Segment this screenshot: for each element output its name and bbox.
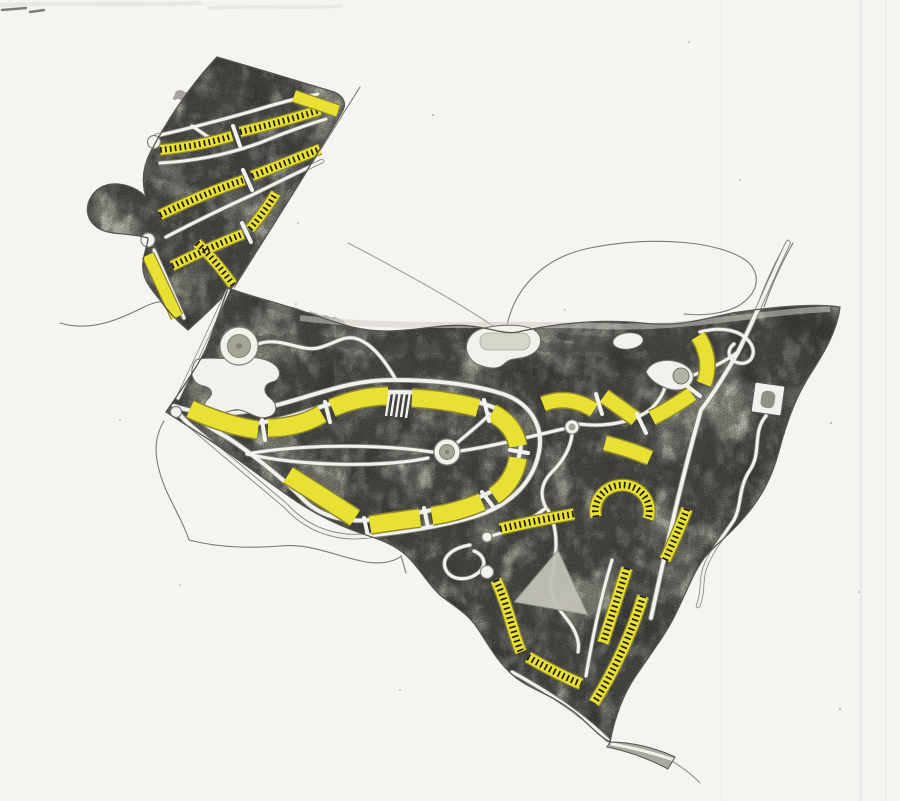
circular-plaza <box>220 327 258 365</box>
teardrop-mound <box>673 368 689 384</box>
masterplan-svg <box>0 0 900 801</box>
roundabout-main <box>434 439 460 465</box>
building-plot <box>751 382 785 416</box>
cul-de-sac-lobe-upper <box>482 532 492 542</box>
roundabout-mini <box>565 420 579 434</box>
cul-de-sac-lobe-lower <box>481 566 494 579</box>
funnel-clearing-pad <box>480 333 530 350</box>
site-plan-drawing <box>0 0 900 801</box>
